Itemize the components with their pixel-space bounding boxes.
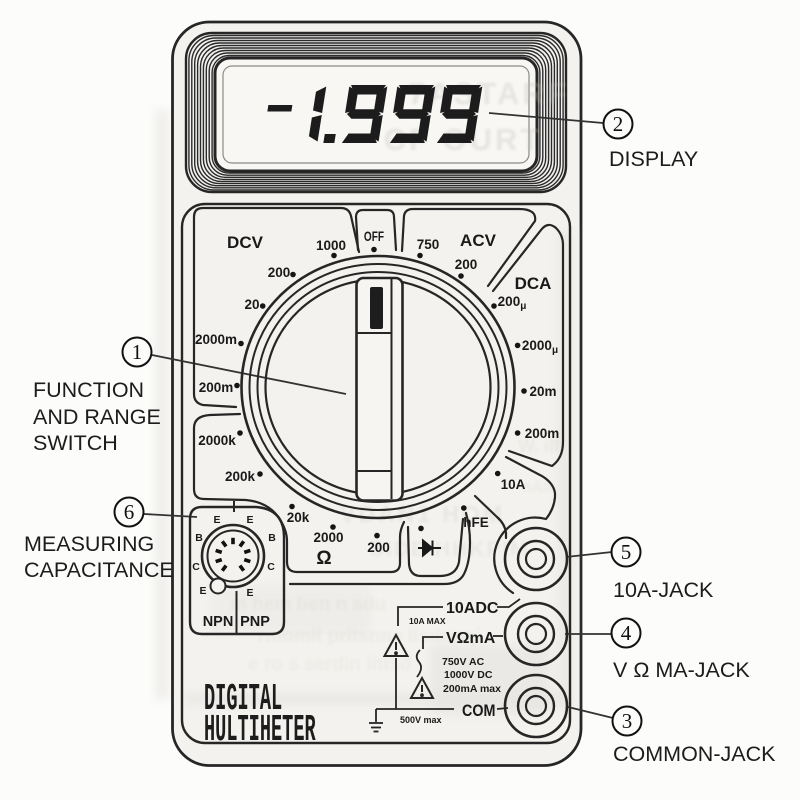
svg-text:COM: COM (462, 702, 495, 720)
svg-text:20m: 20m (529, 384, 556, 399)
svg-text:VΩmA: VΩmA (446, 630, 496, 647)
svg-text:200: 200 (455, 257, 478, 272)
svg-text:V Ω MA-JACK: V Ω MA-JACK (613, 658, 750, 682)
svg-text:C: C (192, 561, 200, 573)
svg-text:200m: 200m (199, 380, 234, 395)
svg-text:10A: 10A (501, 477, 526, 492)
svg-text:NPN: NPN (203, 614, 234, 630)
svg-text:HULTIHETER: HULTIHETER (204, 708, 316, 751)
svg-text:DCA: DCA (515, 274, 552, 293)
svg-text:20k: 20k (287, 510, 310, 525)
svg-text:ACV: ACV (460, 231, 497, 250)
svg-text:E: E (199, 585, 206, 597)
svg-text:hFE: hFE (463, 515, 489, 530)
svg-text:750V AC: 750V AC (442, 656, 485, 668)
svg-text:MEASURING: MEASURING (24, 532, 154, 556)
svg-text:750: 750 (417, 237, 440, 252)
svg-text:1: 1 (132, 340, 143, 364)
svg-text:E: E (246, 514, 253, 526)
svg-text:10ADC: 10ADC (446, 600, 499, 617)
svg-text:500V max: 500V max (400, 715, 442, 725)
svg-text:COMMON-JACK: COMMON-JACK (613, 742, 776, 766)
svg-text:B: B (268, 532, 276, 544)
svg-text:10A-JACK: 10A-JACK (613, 578, 714, 602)
svg-text:2: 2 (613, 112, 624, 136)
svg-text:E: E (246, 587, 253, 599)
svg-text:2000: 2000 (313, 530, 343, 545)
svg-text:200mA max: 200mA max (443, 683, 501, 695)
svg-text:6: 6 (124, 500, 135, 524)
svg-text:2000m: 2000m (195, 332, 237, 347)
svg-text:C: C (267, 561, 275, 573)
svg-text:10A MAX: 10A MAX (409, 616, 446, 626)
svg-text:FUNCTION: FUNCTION (33, 378, 144, 402)
svg-text:200: 200 (268, 265, 291, 280)
svg-text:CAPACITANCE: CAPACITANCE (24, 558, 174, 582)
svg-text:1000V DC: 1000V DC (444, 669, 493, 681)
svg-text:4: 4 (621, 621, 632, 645)
svg-text:B: B (195, 532, 203, 544)
svg-text:DCV: DCV (227, 233, 264, 252)
svg-text:200: 200 (367, 540, 390, 555)
svg-text:SWITCH: SWITCH (33, 431, 118, 455)
svg-text:3: 3 (622, 709, 633, 733)
svg-text:e ro s serdin ihtsd: e ro s serdin ihtsd (248, 654, 412, 675)
svg-text:E: E (213, 514, 220, 526)
svg-text:200m: 200m (525, 426, 560, 441)
svg-text:OFF: OFF (364, 228, 384, 244)
svg-text:PNP: PNP (240, 614, 270, 630)
svg-text:2000k: 2000k (198, 433, 236, 448)
svg-text:5: 5 (621, 540, 632, 564)
svg-text:Ω: Ω (316, 548, 331, 569)
svg-text:1000: 1000 (316, 238, 346, 253)
svg-text:20: 20 (244, 297, 259, 312)
svg-text:DISPLAY: DISPLAY (609, 147, 698, 171)
svg-text:AND RANGE: AND RANGE (33, 405, 161, 429)
svg-text:200k: 200k (225, 469, 256, 484)
